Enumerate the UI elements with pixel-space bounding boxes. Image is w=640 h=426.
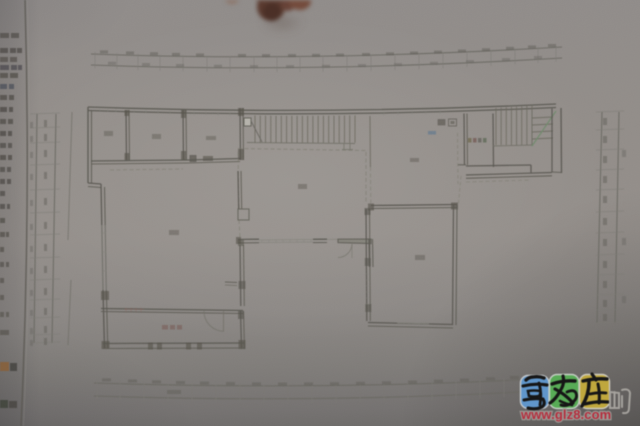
svg-text:www.glz8.com: www.glz8.com xyxy=(520,407,611,422)
